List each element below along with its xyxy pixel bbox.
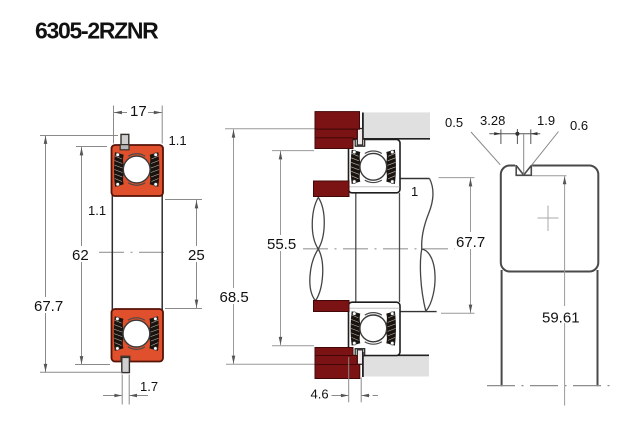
svg-text:67.7: 67.7 [34,298,63,315]
svg-text:67.7: 67.7 [456,234,485,251]
svg-text:1.1: 1.1 [88,203,106,218]
svg-text:6305-2RZNR: 6305-2RZNR [35,18,159,44]
svg-text:1.9: 1.9 [537,113,555,128]
svg-text:4.6: 4.6 [311,387,329,402]
svg-text:17: 17 [130,103,147,120]
svg-text:1.1: 1.1 [169,133,187,148]
svg-text:1: 1 [411,184,418,199]
svg-text:0.5: 0.5 [445,115,463,130]
svg-text:25: 25 [188,247,205,264]
svg-text:3.28: 3.28 [480,113,505,128]
svg-text:62: 62 [72,247,89,264]
svg-text:1.7: 1.7 [140,379,158,394]
svg-text:0.6: 0.6 [570,118,588,133]
svg-text:55.5: 55.5 [267,236,296,253]
svg-text:68.5: 68.5 [220,289,249,306]
svg-text:59.61: 59.61 [542,310,580,327]
